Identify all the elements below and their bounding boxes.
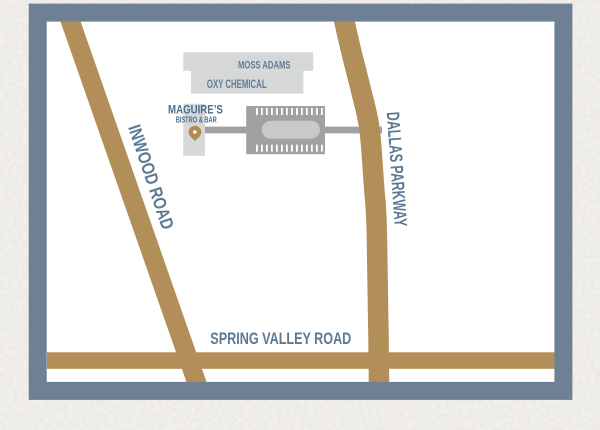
svg-text:BISTRO & BAR: BISTRO & BAR <box>176 115 217 124</box>
svg-text:SPRING VALLEY ROAD: SPRING VALLEY ROAD <box>210 329 351 348</box>
svg-text:MOSS ADAMS: MOSS ADAMS <box>238 60 291 72</box>
svg-text:OXY CHEMICAL: OXY CHEMICAL <box>207 78 267 91</box>
